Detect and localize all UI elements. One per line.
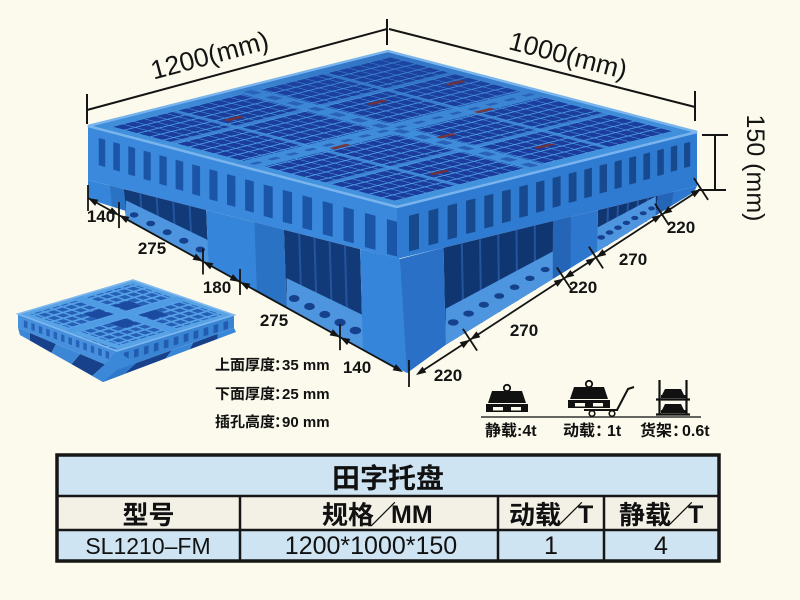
svg-text:275: 275 xyxy=(138,239,166,258)
svg-text:25 mm: 25 mm xyxy=(282,386,330,403)
svg-text:180: 180 xyxy=(203,278,231,297)
svg-text:1t: 1t xyxy=(607,423,622,440)
svg-text:T: T xyxy=(578,501,593,529)
svg-text:35 mm: 35 mm xyxy=(282,357,330,374)
svg-text:MM: MM xyxy=(391,501,433,529)
svg-text:220: 220 xyxy=(434,366,462,385)
svg-text:220: 220 xyxy=(667,218,695,237)
svg-text:90 mm: 90 mm xyxy=(282,414,330,431)
svg-text:1: 1 xyxy=(544,532,558,560)
svg-text:SL1210–FM: SL1210–FM xyxy=(85,533,210,559)
svg-text:270: 270 xyxy=(510,321,538,340)
svg-text:140: 140 xyxy=(87,207,115,226)
svg-text:T: T xyxy=(688,501,703,529)
svg-text:140: 140 xyxy=(343,358,371,377)
svg-text:270: 270 xyxy=(619,250,647,269)
svg-text:0.6t: 0.6t xyxy=(682,423,710,440)
svg-text::4t: :4t xyxy=(517,423,537,440)
svg-text:220: 220 xyxy=(569,278,597,297)
svg-text:275: 275 xyxy=(260,311,288,330)
svg-text:4: 4 xyxy=(654,532,668,560)
svg-text:1200*1000*150: 1200*1000*150 xyxy=(285,532,457,560)
svg-text:150 (mm): 150 (mm) xyxy=(741,115,769,222)
